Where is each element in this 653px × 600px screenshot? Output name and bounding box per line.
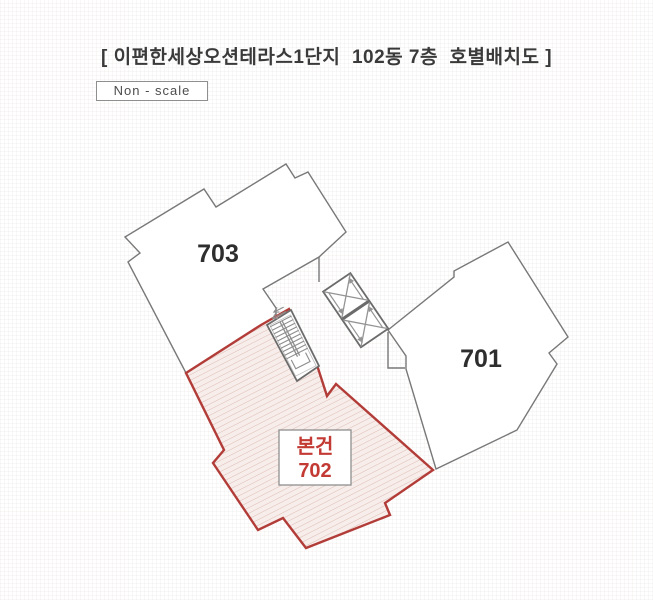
subject-callout: 본건 702 — [279, 430, 351, 485]
floorplan-drawing: 703 701 본건 702 — [0, 0, 653, 600]
subject-tag-label: 본건 — [297, 435, 334, 458]
floorplan-page: [ 이편한세상오션테라스1단지 102동 7층 호별배치도 ] Non - sc… — [0, 0, 653, 600]
unit-703-label: 703 — [197, 240, 239, 268]
unit-701-label: 701 — [460, 345, 502, 373]
subject-number-label: 702 — [298, 460, 331, 482]
